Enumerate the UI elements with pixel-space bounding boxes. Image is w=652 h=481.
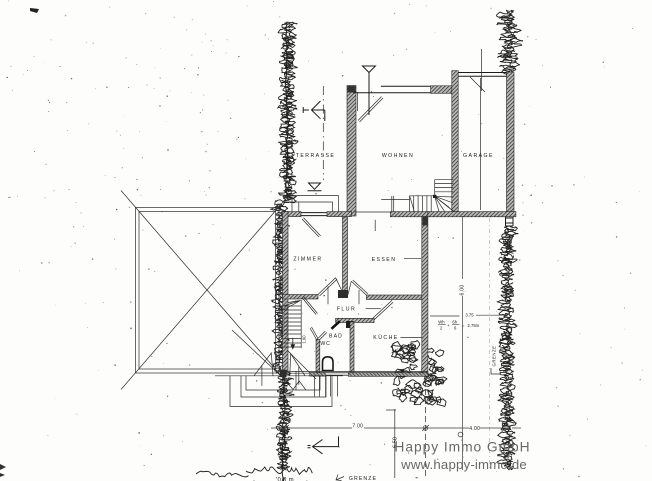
svg-text:BAD: BAD — [329, 334, 343, 340]
svg-text:TERRASSE: TERRASSE — [296, 153, 336, 159]
svg-text:www.happy-immo.de: www.happy-immo.de — [400, 457, 527, 472]
svg-text:GRENZE: GRENZE — [349, 476, 377, 481]
svg-text:7.00: 7.00 — [352, 423, 363, 429]
svg-text:Wh: Wh — [438, 320, 445, 325]
svg-text:3.75: 3.75 — [465, 313, 474, 318]
svg-text:4.00: 4.00 — [469, 426, 480, 432]
svg-text:WOHNEN: WOHNEN — [382, 153, 414, 159]
svg-text:GARAGE: GARAGE — [463, 153, 494, 159]
svg-text:FLUR: FLUR — [337, 307, 356, 313]
svg-text:6h: 6h — [452, 320, 457, 325]
svg-text:ESSEN: ESSEN — [372, 257, 397, 263]
svg-text:6.00: 6.00 — [460, 285, 466, 296]
svg-text:Happy Immo GmbH: Happy Immo GmbH — [394, 440, 530, 455]
svg-text:2.75m: 2.75m — [468, 323, 480, 328]
svg-text:WC: WC — [320, 341, 330, 347]
svg-text:'0.0 m: '0.0 m — [276, 478, 294, 481]
svg-text:1.90: 1.90 — [302, 335, 307, 344]
svg-text:KÜCHE: KÜCHE — [373, 334, 398, 341]
svg-text:GRENZE: GRENZE — [492, 345, 497, 366]
svg-text:ZIMMER: ZIMMER — [293, 257, 322, 263]
